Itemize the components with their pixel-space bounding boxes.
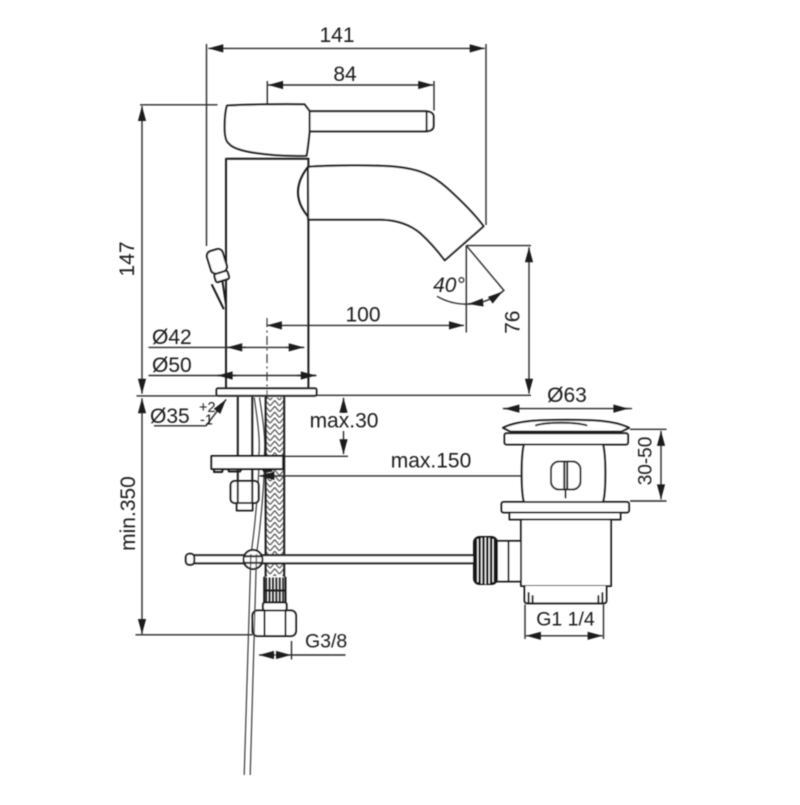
svg-text:G3/8: G3/8 xyxy=(305,631,347,653)
svg-text:84: 84 xyxy=(333,63,357,86)
svg-text:Ø63: Ø63 xyxy=(547,384,587,407)
svg-text:min.350: min.350 xyxy=(117,476,140,551)
svg-text:141: 141 xyxy=(319,24,354,47)
svg-text:G1 1/4: G1 1/4 xyxy=(536,609,595,631)
svg-text:max.150: max.150 xyxy=(391,450,472,473)
svg-text:Ø35: Ø35 xyxy=(150,405,190,428)
svg-text:76: 76 xyxy=(502,311,525,334)
svg-text:Ø50: Ø50 xyxy=(152,354,192,377)
svg-text:30-50: 30-50 xyxy=(636,437,657,486)
svg-text:147: 147 xyxy=(116,241,139,276)
svg-text:Ø42: Ø42 xyxy=(152,326,192,349)
svg-text:max.30: max.30 xyxy=(310,410,379,433)
svg-text:-1: -1 xyxy=(200,413,213,429)
svg-text:40°: 40° xyxy=(433,274,465,297)
svg-text:100: 100 xyxy=(345,304,380,327)
